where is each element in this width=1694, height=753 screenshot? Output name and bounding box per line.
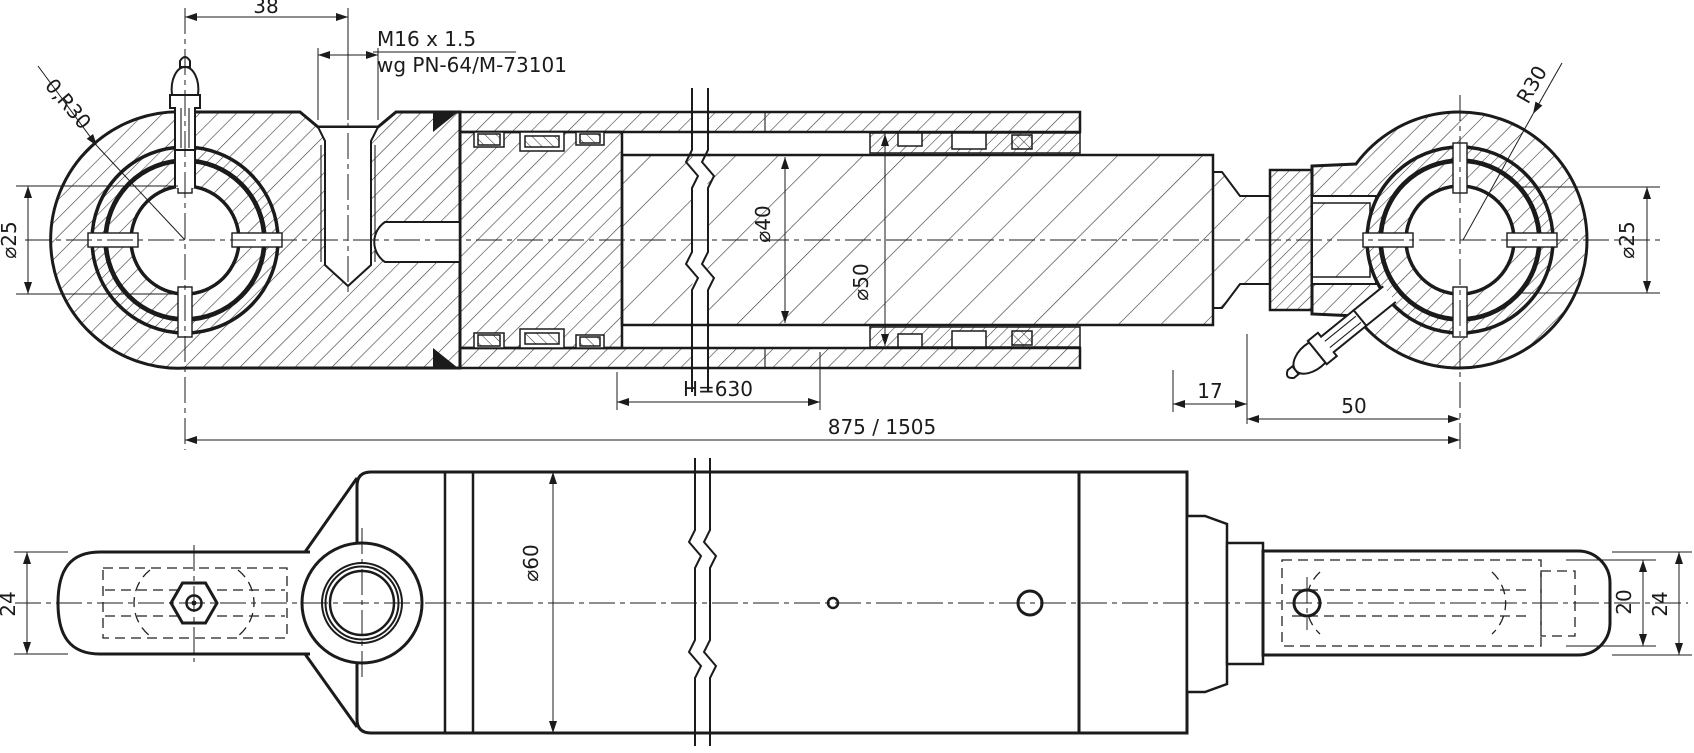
stroke-dim-label: H=630 xyxy=(683,377,753,401)
oil-passage xyxy=(374,222,461,262)
piston-seal xyxy=(525,136,559,147)
eye-thickness-right-label: 24 xyxy=(1648,591,1672,616)
gland-groove xyxy=(952,331,986,347)
eye-thickness-left-label: 24 xyxy=(0,591,20,616)
section-view xyxy=(51,57,1587,392)
rod-dia-label: ⌀40 xyxy=(751,205,775,243)
drawing-canvas: 38 M16 x 1.5 wg PN-64/M-73101 0,R30 R30 … xyxy=(0,0,1694,753)
hydraulic-cylinder-drawing: 38 M16 x 1.5 wg PN-64/M-73101 0,R30 R30 … xyxy=(0,0,1694,753)
clevis-inner-width-label: 20 xyxy=(1612,589,1636,614)
gland-groove xyxy=(898,133,922,146)
rod-end-dim-label: 50 xyxy=(1341,394,1366,418)
break-gap xyxy=(696,458,710,746)
gland-dim-label: 17 xyxy=(1197,379,1222,403)
gland-groove xyxy=(898,334,922,347)
barrel-wall-top xyxy=(460,112,1080,132)
piston-seal xyxy=(580,134,600,143)
bore-dia-label: ⌀50 xyxy=(849,263,873,301)
gland-seal xyxy=(1012,135,1032,149)
flare-line xyxy=(305,478,357,552)
radius-note-left: 0,R30 xyxy=(40,74,96,134)
piston-seal xyxy=(478,134,500,145)
gland-groove xyxy=(952,133,986,149)
barrel-dia-label: ⌀60 xyxy=(519,544,543,582)
port-thread-note-line2: wg PN-64/M-73101 xyxy=(377,53,567,77)
port-thread-note-line1: M16 x 1.5 xyxy=(377,27,476,51)
barrel-wall-bottom xyxy=(460,348,1080,368)
pin-bore-dia-right: ⌀25 xyxy=(1615,221,1639,259)
dim-text-38: 38 xyxy=(253,0,278,18)
plan-view xyxy=(58,458,1610,746)
piston-seal xyxy=(580,337,600,346)
pin-bore-dia-left: ⌀25 xyxy=(0,221,21,259)
piston-seal xyxy=(478,335,500,346)
overall-length-label: 875 / 1505 xyxy=(828,415,937,439)
radius-note-right: R30 xyxy=(1512,61,1552,107)
gland-collar xyxy=(1187,516,1227,692)
gland-seal xyxy=(1012,331,1032,345)
flare-line xyxy=(305,654,357,727)
piston-seal xyxy=(525,333,559,344)
